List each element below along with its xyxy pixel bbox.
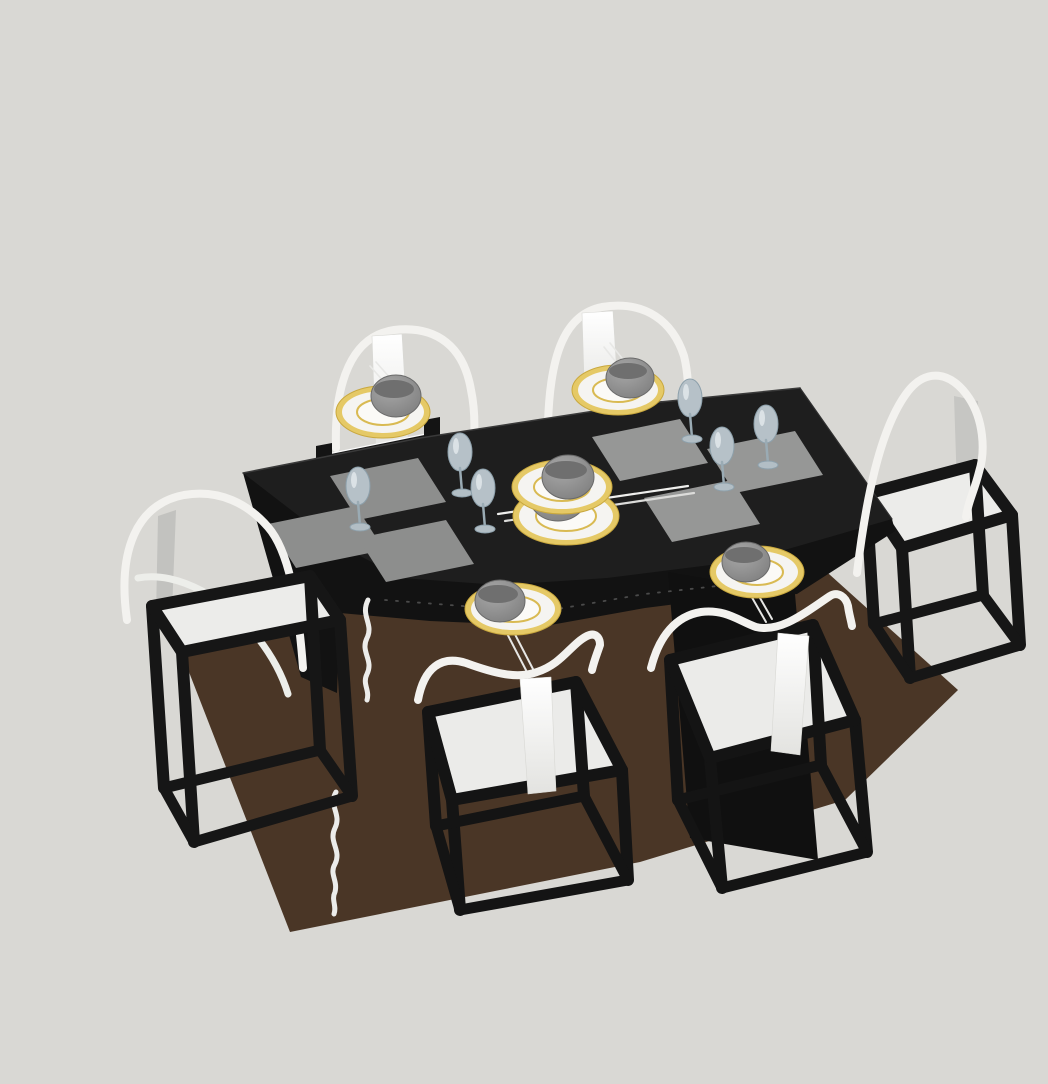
wine-glass-4-base <box>682 435 702 443</box>
back-left-bowl-opening <box>374 380 414 398</box>
wine-glass-1-base <box>350 523 370 531</box>
wine-glass-5-bowl <box>710 427 734 465</box>
front-left-bowl-opening <box>478 585 518 603</box>
wine-glass-6-base <box>758 461 778 469</box>
wine-glass-4-gleam <box>683 384 689 400</box>
wine-glass-5-gleam <box>715 432 721 448</box>
front-right-bowl-opening <box>725 547 763 563</box>
wine-glass-1-gleam <box>351 472 357 488</box>
render-viewport <box>0 0 1048 1084</box>
wine-glass-6-gleam <box>759 410 765 426</box>
wine-glass-6-bowl <box>754 405 778 443</box>
wine-glass-1-bowl <box>346 467 370 505</box>
wine-glass-5-base <box>714 483 734 491</box>
wine-glass-2-bowl <box>448 433 472 471</box>
scene-svg <box>0 0 1048 1084</box>
chair-right-leg-3 <box>1012 515 1020 645</box>
scene-root <box>0 0 1048 1084</box>
wine-glass-3-gleam <box>476 474 482 490</box>
wine-glass-4-bowl <box>678 379 702 417</box>
back-right-bowl-opening <box>609 363 647 379</box>
wine-glass-3-base <box>475 525 495 533</box>
wine-glass-2-gleam <box>453 438 459 454</box>
wine-glass-3-bowl <box>471 469 495 507</box>
center-bowl-upper-opening <box>545 461 587 479</box>
wine-glass-2-base <box>452 489 472 497</box>
